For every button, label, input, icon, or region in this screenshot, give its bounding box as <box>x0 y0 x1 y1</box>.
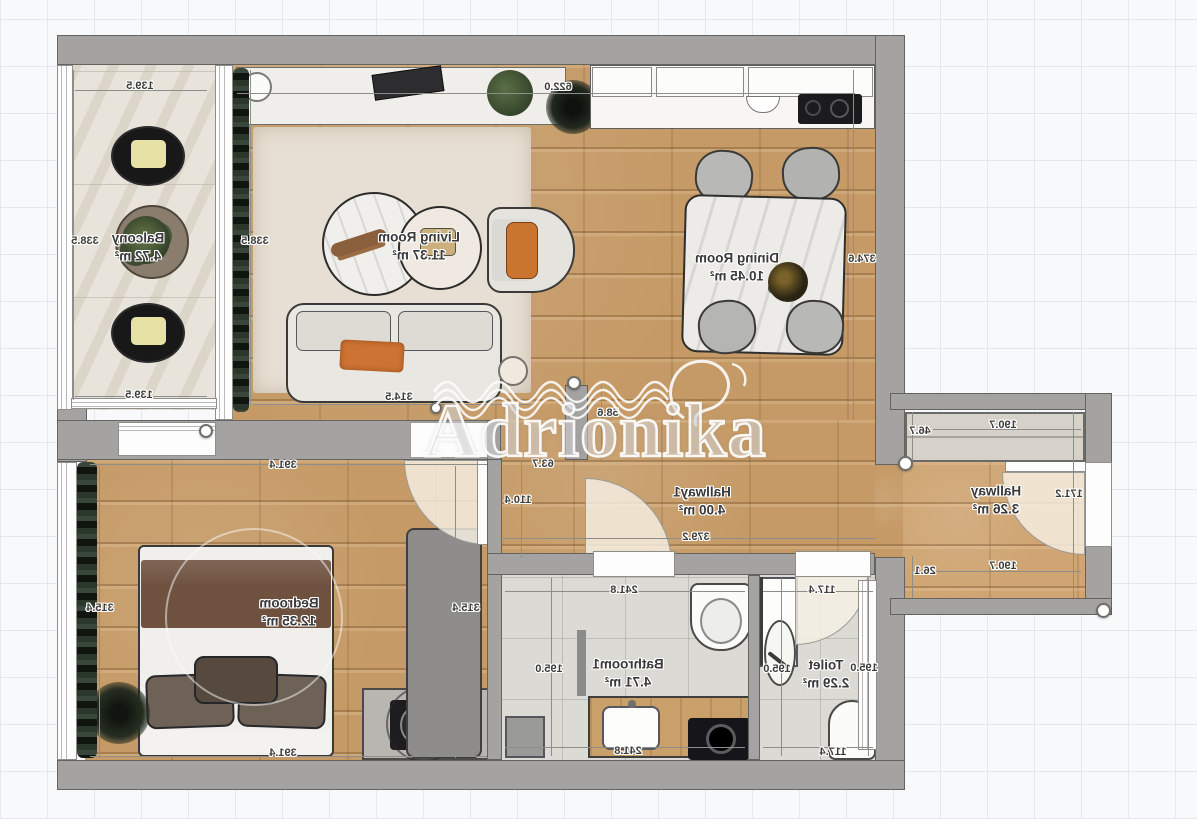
bathroom-door-gap <box>593 551 675 577</box>
dimension-label: 338.5 <box>241 235 269 247</box>
wall-right-lower <box>875 557 905 790</box>
dimension-label: 139.5 <box>126 80 154 92</box>
bathroom-toilet-seat <box>700 598 742 644</box>
viewpoint-dot <box>898 456 913 471</box>
bathroom-cabinet <box>505 716 545 758</box>
dimension-label: 171.2 <box>1055 488 1083 500</box>
hallway-pass-floor <box>875 462 905 557</box>
room-label: Living Room11.37 m² <box>378 228 460 263</box>
balcony-living-window <box>215 65 233 420</box>
dimension-label: 241.8 <box>614 745 642 757</box>
dimension-label: 190.7 <box>989 560 1017 572</box>
dimension-line <box>853 70 854 420</box>
appliance-lens-icon <box>706 724 736 754</box>
bedroom-left-window <box>57 462 77 760</box>
wall-bathroom-toilet <box>748 575 760 760</box>
cooktop-burner-1 <box>805 100 821 116</box>
dimension-label: 139.5 <box>125 389 153 401</box>
watermark-text: Adrionika <box>424 388 767 475</box>
dimension-label: 26.1 <box>914 565 935 577</box>
wall-ext-top <box>890 393 1112 410</box>
vanity-sink <box>602 706 660 750</box>
dimension-line <box>521 462 522 558</box>
wall-ext-right-top <box>1085 393 1112 470</box>
wall-top <box>57 35 905 65</box>
armchair-orange-cushion <box>506 222 538 279</box>
dimension-line <box>912 556 913 598</box>
room-label: Balcony4.72 m² <box>112 229 165 264</box>
toilet-door-gap <box>795 551 871 577</box>
dimension-line <box>912 412 913 462</box>
balcony-chair-cushion <box>131 317 166 345</box>
dimension-label: 46.7 <box>909 425 930 437</box>
bedroom-plant <box>88 682 150 744</box>
room-label: Bathroom14.71 m² <box>592 655 663 690</box>
room-label: Bedroom12.35 m² <box>259 594 318 629</box>
dimension-label: 338.5 <box>71 235 99 247</box>
viewpoint-dot <box>1096 603 1111 618</box>
dimension-label: 195.0 <box>535 663 563 675</box>
entry-door-gap <box>1085 462 1112 547</box>
wall-bedroom-bathroom <box>487 458 502 760</box>
dimension-label: 110.4 <box>505 494 532 506</box>
viewpoint-dot <box>199 424 213 438</box>
dimension-label: 117.4 <box>820 746 847 758</box>
cooktop-burner-2 <box>830 99 849 118</box>
dimension-line <box>237 93 855 94</box>
bed-footer-band <box>142 730 330 754</box>
wardrobe <box>406 528 482 758</box>
dimension-label: 117.4 <box>809 584 836 596</box>
dimension-label: 374.6 <box>848 253 876 265</box>
room-label: Dining Room10.45 m² <box>695 249 779 284</box>
wall-bottom <box>57 760 905 790</box>
dimension-label: 622.0 <box>544 81 572 93</box>
wall-ext-bottom <box>890 598 1112 615</box>
balcony-chair-cushion <box>131 140 166 168</box>
dimension-line <box>763 747 873 748</box>
room-label: Hallway14.00 m² <box>673 483 731 518</box>
dimension-label: 195.0 <box>763 663 791 675</box>
room-label: Hallway3.26 m² <box>971 482 1021 517</box>
floor-plan: Balcony4.72 m²Living Room11.37 m²Dining … <box>0 0 1197 819</box>
dimension-label: 190.7 <box>989 419 1017 431</box>
room-label: Toilet2.29 m² <box>803 656 850 691</box>
dimension-label: 391.4 <box>269 747 297 759</box>
dimension-label: 195.0 <box>850 662 878 674</box>
sofa-orange-throw <box>339 339 404 372</box>
dimension-label: 314.5 <box>385 391 413 403</box>
dimension-label: 315.4 <box>452 602 480 614</box>
sofa-cushion <box>398 311 493 351</box>
towel-radiator <box>577 630 586 696</box>
dimension-label: 379.2 <box>682 531 710 543</box>
dimension-label: 315.4 <box>86 602 114 614</box>
vanity-faucet-icon <box>628 700 636 708</box>
dimension-label: 391.4 <box>269 459 297 471</box>
dimension-label: 241.8 <box>610 584 638 596</box>
